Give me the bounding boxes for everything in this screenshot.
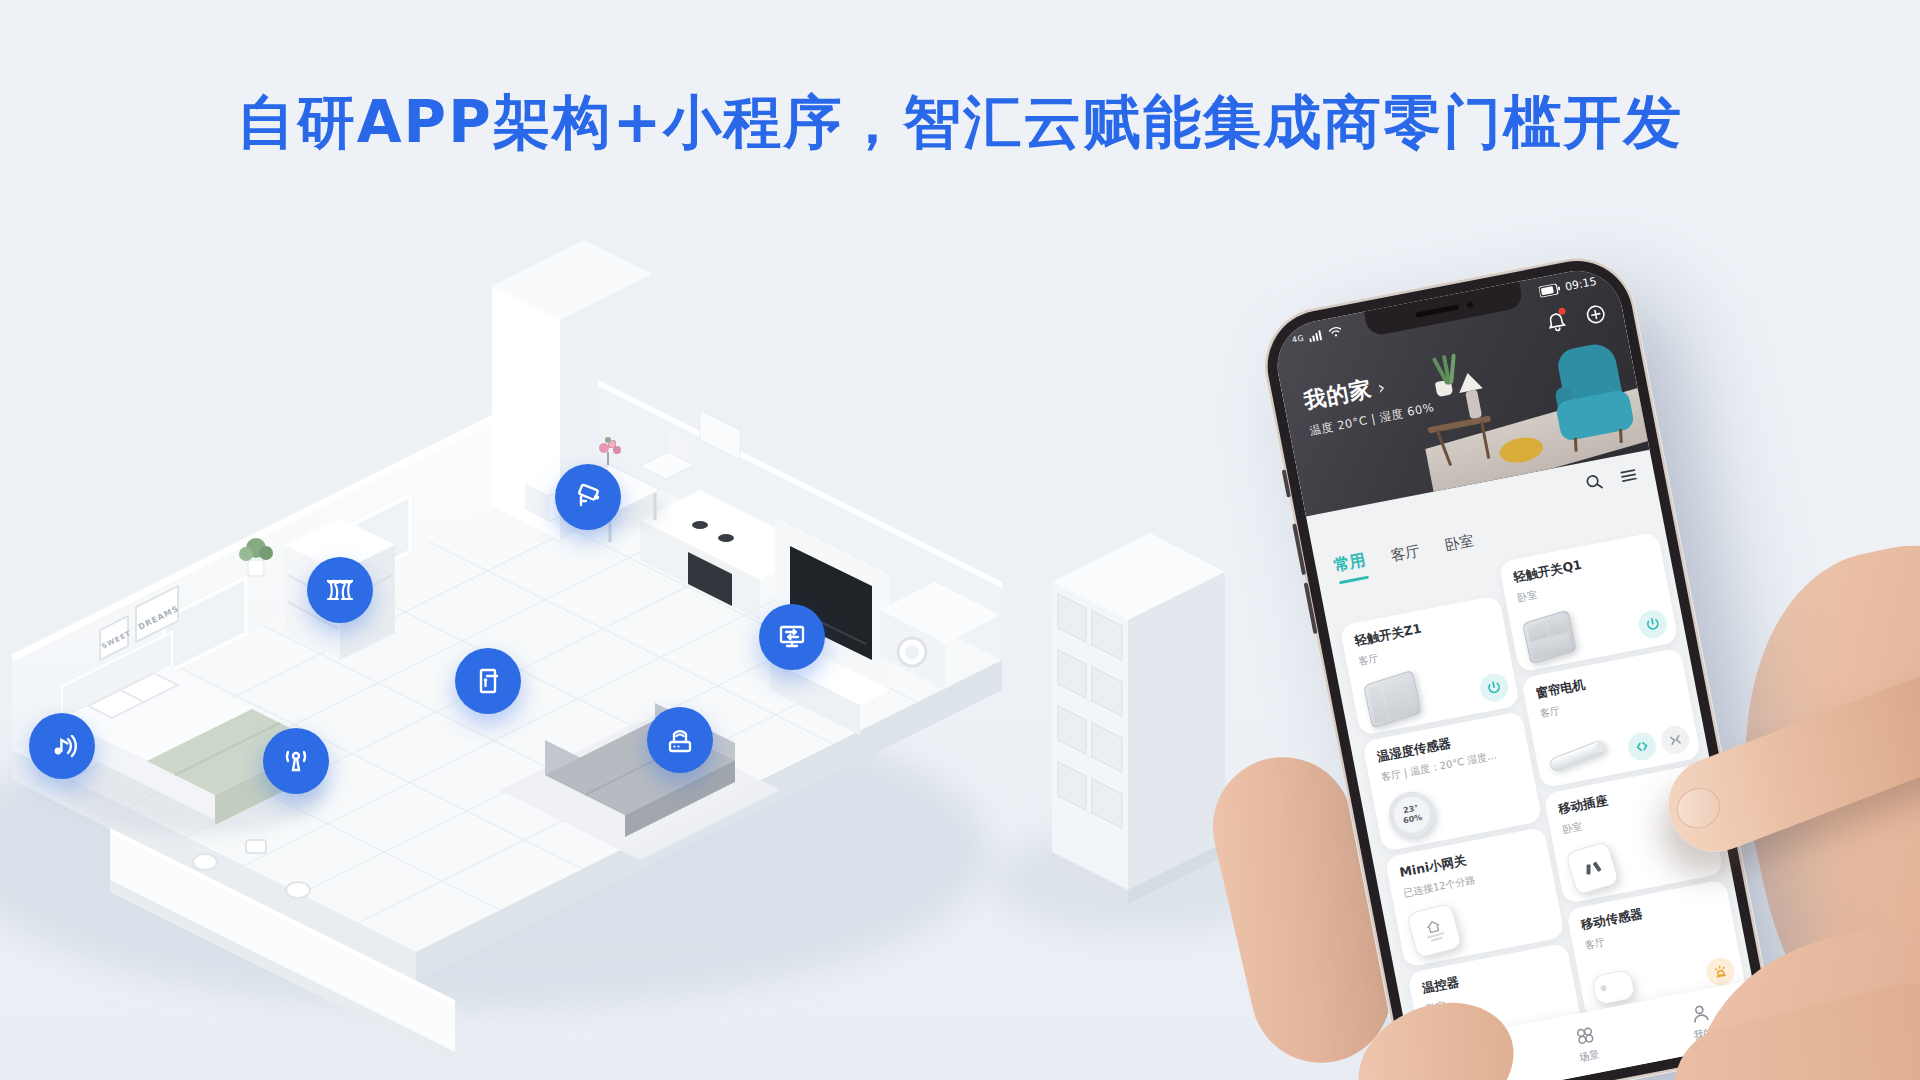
device-card-gateway[interactable]: Mini小网关 已连接12个分路 <box>1385 827 1565 968</box>
device-card-temp-humidity-sensor[interactable]: 温湿度传感器 客厅 | 温度：20°C 湿度… 23° 60% <box>1362 711 1542 852</box>
photo-lamp <box>1456 371 1483 393</box>
power-button[interactable] <box>1637 608 1670 641</box>
mute-switch <box>1282 469 1291 497</box>
device-card-switch-q1[interactable]: 轻触开关Q1 卧室 <box>1498 532 1678 673</box>
socket-image <box>1565 841 1620 896</box>
search-icon[interactable] <box>1583 471 1605 493</box>
add-device-icon[interactable] <box>1583 302 1609 328</box>
chevron-right-icon: › <box>1376 376 1388 398</box>
isometric-house-illustration: SWEET DREAMS <box>0 190 1240 1080</box>
menu-icon[interactable] <box>1617 464 1639 486</box>
motion-sensor-image <box>1591 969 1636 1006</box>
signal-icon <box>1308 329 1325 343</box>
tab-woshi[interactable]: 卧室 <box>1443 531 1477 563</box>
tab-keting[interactable]: 客厅 <box>1389 542 1423 574</box>
curtain-icon[interactable] <box>307 557 373 623</box>
music-icon[interactable] <box>29 713 95 779</box>
volume-button-2 <box>1304 582 1318 634</box>
closet-wall <box>1052 533 1225 904</box>
gateway-image <box>1406 902 1462 958</box>
curtain-motor-image <box>1548 739 1607 773</box>
curtain-open-button[interactable] <box>1626 730 1659 763</box>
wifi-icon <box>1328 325 1344 338</box>
device-card-curtain-motor[interactable]: 窗帘电机 客厅 <box>1521 647 1701 788</box>
power-button[interactable] <box>1478 671 1511 704</box>
device-card-switch-z1[interactable]: 轻触开关Z1 客厅 <box>1340 595 1520 736</box>
tab-changyong[interactable]: 常用 <box>1332 550 1369 585</box>
camera-icon[interactable] <box>555 464 621 530</box>
door-lock-icon[interactable] <box>455 648 521 714</box>
antenna-icon[interactable] <box>263 728 329 794</box>
network-label: 4G <box>1291 334 1305 345</box>
room-tabs: 常用 客厅 卧室 <box>1332 529 1477 585</box>
fingernail <box>1671 782 1726 835</box>
page-title: 自研APP架构+小程序，智汇云赋能集成商零门槛开发 <box>0 84 1920 162</box>
temp-sensor-image: 23° 60% <box>1385 788 1439 842</box>
switch-q1-image <box>1522 610 1577 665</box>
router-icon[interactable] <box>647 707 713 773</box>
home-name[interactable]: 我的家› <box>1301 371 1388 416</box>
notification-bell-icon[interactable] <box>1544 309 1570 335</box>
switch-z1-image <box>1363 670 1422 729</box>
tv-control-icon[interactable] <box>759 604 825 670</box>
volume-button <box>1292 523 1306 575</box>
curtain-close-button[interactable] <box>1659 724 1692 757</box>
